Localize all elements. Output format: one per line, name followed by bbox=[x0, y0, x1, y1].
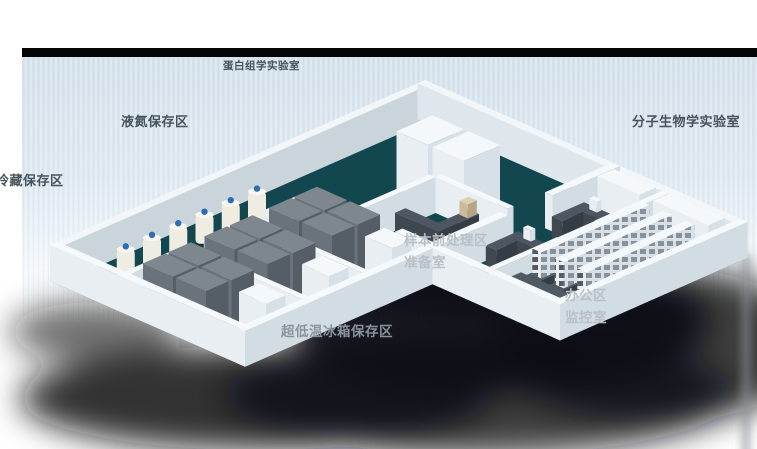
label-proteomics-lab: 蛋白组学实验室 bbox=[223, 58, 300, 73]
label-preparation-room: 准备室 bbox=[404, 251, 446, 271]
floorplan-3d-render bbox=[0, 0, 757, 449]
backdrop-edge-strip bbox=[741, 255, 751, 449]
lab-floorplan-scene: 蛋白组学实验室 液氮保存区 冷藏保存区 分子生物学实验室 样本前处理区 准备室 … bbox=[0, 0, 757, 449]
backdrop-top-bar bbox=[22, 48, 757, 57]
label-sample-pretreatment-area: 样本前处理区 bbox=[404, 229, 488, 249]
label-liquid-nitrogen-area: 液氮保存区 bbox=[121, 111, 189, 130]
label-monitoring-room: 监控室 bbox=[565, 306, 607, 326]
label-molecular-biology-lab: 分子生物学实验室 bbox=[632, 111, 740, 130]
label-cold-storage-area: 冷藏保存区 bbox=[0, 170, 64, 189]
label-ult-freezer-area: 超低温冰箱保存区 bbox=[281, 320, 393, 340]
label-office-area: 办公区 bbox=[565, 284, 607, 304]
